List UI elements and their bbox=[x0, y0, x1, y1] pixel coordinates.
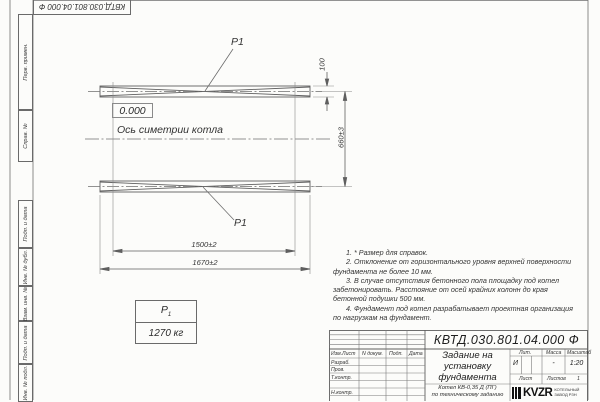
manufacturer-logo: KVZR КОТЕЛЬНЫЙ ЗАВОД РЗН bbox=[512, 386, 586, 400]
logo-text: KVZR bbox=[523, 387, 552, 399]
stamp-vzam-inv: Взам. инв. № bbox=[18, 286, 33, 321]
dim-100: 100 bbox=[318, 50, 327, 80]
title-block: КВТД.030.801.04.000 Ф Задание на установ… bbox=[329, 330, 588, 401]
col-podp: Подп. bbox=[389, 351, 403, 357]
note-1: 1. * Размер для справок. bbox=[333, 248, 580, 257]
mass-label: Масса bbox=[546, 350, 561, 356]
load-name: P bbox=[161, 304, 168, 316]
dim-660: 660±3 bbox=[337, 108, 346, 168]
stamp-sprav-n: Справ. № bbox=[18, 110, 33, 162]
load-table-value-row: 1270 кг bbox=[136, 323, 196, 344]
document-title: Задание на установку фундамента bbox=[426, 350, 509, 383]
col-data: Дата bbox=[409, 351, 423, 357]
load-table-name-row: P1 bbox=[136, 301, 196, 323]
leader-top bbox=[205, 49, 233, 91]
stamp-inv-podl: Инв. № подл. bbox=[18, 364, 33, 402]
dim-1670: 1670±2 bbox=[171, 258, 239, 267]
logo-subtitle: КОТЕЛЬНЫЙ ЗАВОД РЗН bbox=[554, 388, 579, 397]
col-n-dokum: N докум. bbox=[362, 351, 383, 357]
col-izm-list: Изм.Лист bbox=[331, 351, 355, 357]
note-3: 3. В случае отсутствия бетонного пола пл… bbox=[333, 276, 580, 304]
row-nkontr: Н.контр. bbox=[331, 390, 353, 396]
scale-value: 1:20 bbox=[565, 360, 588, 367]
level-mark-box: 0.000 bbox=[112, 103, 153, 118]
mass-value: - bbox=[542, 360, 565, 367]
subject-line2: по техническому заданию bbox=[426, 392, 509, 399]
scale-label: Масштаб bbox=[567, 350, 591, 356]
symmetry-axis-label: Ось симетрии котла bbox=[117, 124, 223, 136]
top-designation-text: КВТД.030.801.04.000 Ф bbox=[39, 2, 125, 11]
row-tkontr: Т.контр. bbox=[331, 375, 352, 381]
sheet-label: Лист bbox=[519, 376, 532, 382]
stamp-podp-data-2: Подп. и дата bbox=[18, 321, 33, 364]
load-value: 1270 кг bbox=[149, 328, 184, 339]
stamp-perv-primen: Перв. примен. bbox=[18, 14, 33, 110]
p1-label-bottom: P1 bbox=[234, 217, 247, 229]
doc-number: КВТД.030.801.04.000 Ф bbox=[426, 331, 587, 348]
subject: Котел КВ-0,35 Д (ПГ) по техническому зад… bbox=[426, 385, 509, 398]
stamp-inv-dubl: Инв. № дубл. bbox=[18, 248, 33, 286]
subject-line1: Котел КВ-0,35 Д (ПГ) bbox=[426, 385, 509, 392]
lit-value: И bbox=[510, 360, 521, 367]
stamp-podp-data-1: Подп. и дата bbox=[18, 200, 33, 248]
row-prov: Пров. bbox=[331, 367, 345, 373]
level-mark: 0.000 bbox=[119, 105, 145, 117]
load-table: P1 1270 кг bbox=[135, 300, 197, 344]
dim-1500: 1500±2 bbox=[170, 240, 238, 249]
row-razrab: Разраб. bbox=[331, 360, 350, 366]
p1-label-top: P1 bbox=[231, 36, 244, 48]
load-index: 1 bbox=[168, 313, 171, 319]
sheets-value: 1 bbox=[577, 376, 580, 382]
note-4: 4. Фундамент под котел разрабатывает про… bbox=[333, 304, 580, 323]
notes-block: 1. * Размер для справок. 2. Отклонение о… bbox=[333, 248, 580, 322]
logo-sub-line2: ЗАВОД РЗН bbox=[554, 393, 579, 398]
lit-label: Лит. bbox=[519, 350, 531, 356]
sheets-label: Листов bbox=[547, 376, 566, 382]
coil-emblem-icon bbox=[512, 387, 521, 399]
note-2: 2. Отклонение от горизонтального уровня … bbox=[333, 257, 580, 276]
drawing-sheet: { "page": { "top_designation": "КВТД.030… bbox=[0, 0, 600, 400]
top-designation-box: КВТД.030.801.04.000 Ф bbox=[33, 0, 131, 15]
